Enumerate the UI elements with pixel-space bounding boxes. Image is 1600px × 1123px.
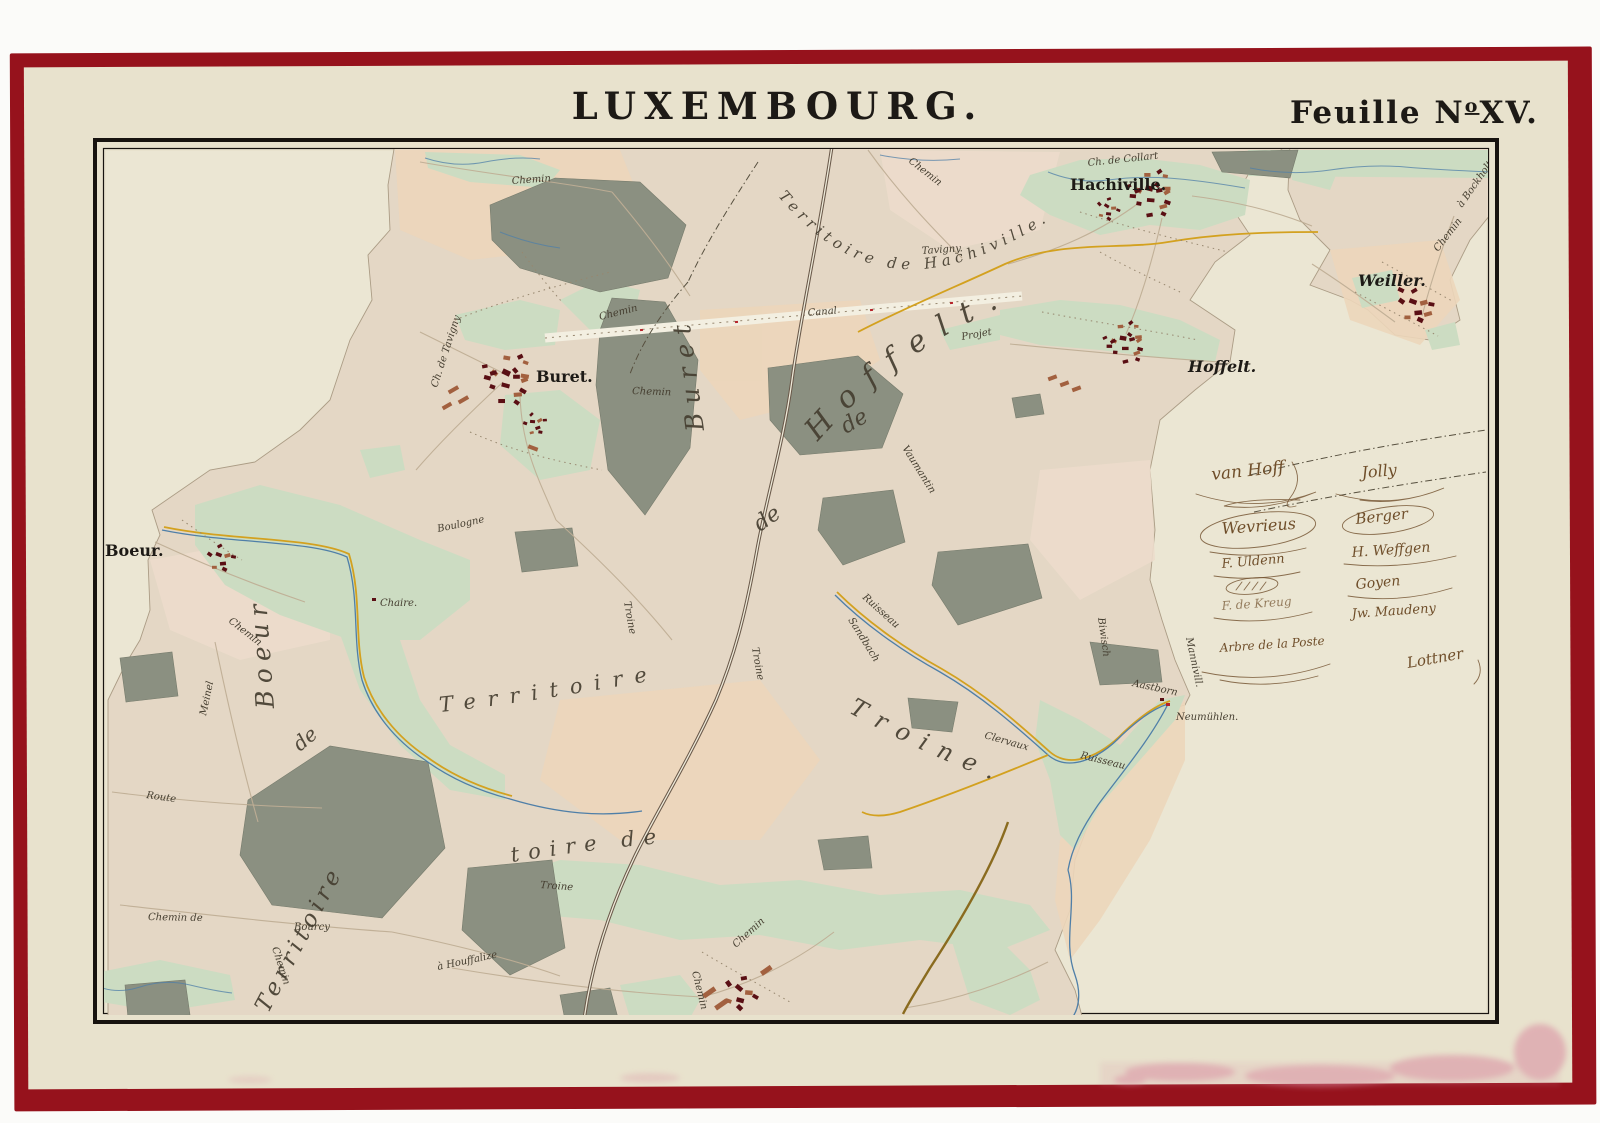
svg-text:Chaire.: Chaire. [380,598,417,609]
svg-text:Jolly: Jolly [1358,460,1399,482]
svg-text:Troine: Troine [540,880,574,893]
scanned-map-photo: LUXEMBOURG. Feuille NoXV. [0,0,1600,1123]
svg-text:Chemin de: Chemin de [148,912,203,924]
sheet-number: Feuille NoXV. [1290,95,1539,131]
svg-text:Hoffelt.: Hoffelt. [1187,357,1256,376]
map-title: LUXEMBOURG. [572,84,985,128]
svg-text:Buret.: Buret. [536,367,593,386]
svg-text:Chemin: Chemin [632,386,672,398]
svg-text:Bourcy: Bourcy [293,922,330,933]
svg-text:Weiller.: Weiller. [1358,271,1426,290]
svg-text:Hachiville.: Hachiville. [1070,175,1166,194]
svg-text:Boeur.: Boeur. [105,541,164,560]
chaire-building [372,598,376,601]
svg-text:Neumühlen.: Neumühlen. [1175,712,1238,723]
